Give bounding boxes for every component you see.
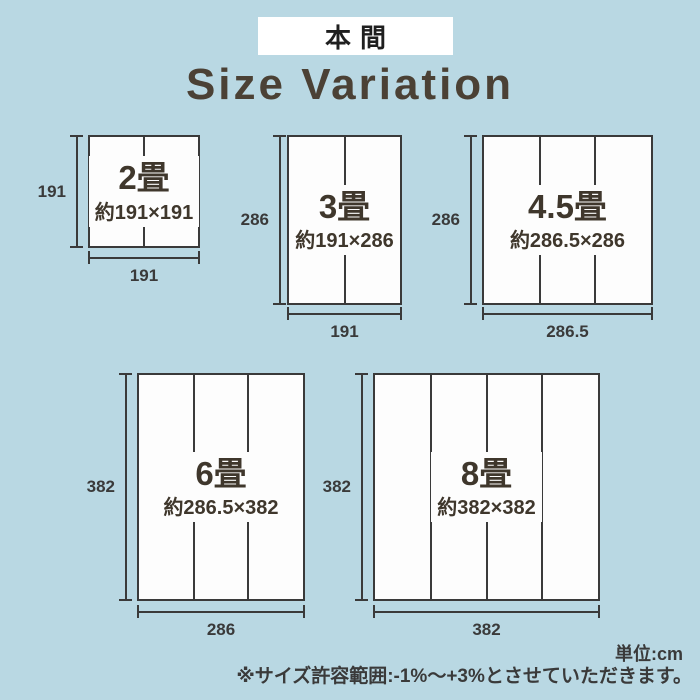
size-name: 6畳: [163, 454, 278, 494]
height-dimension-label-3jo: 286: [229, 210, 269, 230]
size-label-3jo: 3畳 約191×286: [289, 185, 399, 256]
height-dimension-label-4-5jo: 286: [420, 210, 460, 230]
size-variation-page: 本間 Size Variation 191 2畳 約191×191 191 28…: [0, 0, 700, 700]
height-dimension-line-8jo: [355, 373, 368, 601]
width-dimension-label-8jo: 382: [373, 620, 600, 640]
width-dimension-line-6jo: [137, 605, 305, 618]
width-dimension-label-4-5jo: 286.5: [482, 322, 653, 342]
brand-label-box: 本間: [258, 17, 453, 55]
width-dimension-line-3jo: [287, 307, 402, 320]
size-dimensions: 約286.5×286: [510, 229, 625, 253]
size-dimensions: 約382×382: [437, 496, 535, 520]
width-dimension-line-4-5jo: [482, 307, 653, 320]
size-tolerance-note: ※サイズ許容範囲:-1%〜+3%とさせていただきます。: [236, 661, 692, 688]
tatami-rect-6jo: 6畳 約286.5×382: [137, 373, 305, 601]
height-dimension-line-6jo: [119, 373, 132, 601]
size-label-6jo: 6畳 約286.5×382: [157, 452, 284, 523]
width-dimension-label-2jo: 191: [88, 266, 200, 286]
tatami-rect-8jo: 8畳 約382×382: [373, 373, 600, 601]
size-name: 4.5畳: [510, 187, 625, 227]
width-dimension-label-3jo: 191: [287, 322, 402, 342]
size-name: 8畳: [437, 454, 535, 494]
size-dimensions: 約191×191: [95, 201, 193, 225]
width-dimension-label-6jo: 286: [137, 620, 305, 640]
width-dimension-line-8jo: [373, 605, 600, 618]
size-label-2jo: 2畳 約191×191: [89, 156, 199, 227]
size-dimensions: 約286.5×382: [163, 496, 278, 520]
height-dimension-label-6jo: 382: [75, 477, 115, 497]
tatami-rect-2jo: 2畳 約191×191: [88, 135, 200, 248]
height-dimension-label-2jo: 191: [26, 182, 66, 202]
height-dimension-line-3jo: [273, 135, 286, 305]
width-dimension-line-2jo: [88, 251, 200, 264]
size-name: 2畳: [95, 158, 193, 198]
tatami-rect-3jo: 3畳 約191×286: [287, 135, 402, 305]
size-label-4-5jo: 4.5畳 約286.5×286: [504, 185, 631, 256]
height-dimension-label-8jo: 382: [311, 477, 351, 497]
size-name: 3畳: [295, 187, 393, 227]
size-dimensions: 約191×286: [295, 229, 393, 253]
height-dimension-line-4-5jo: [464, 135, 477, 305]
tatami-rect-4-5jo: 4.5畳 約286.5×286: [482, 135, 653, 305]
page-title: Size Variation: [0, 60, 700, 110]
height-dimension-line-2jo: [70, 135, 83, 248]
brand-label: 本間: [325, 18, 395, 55]
size-label-8jo: 8畳 約382×382: [431, 452, 541, 523]
